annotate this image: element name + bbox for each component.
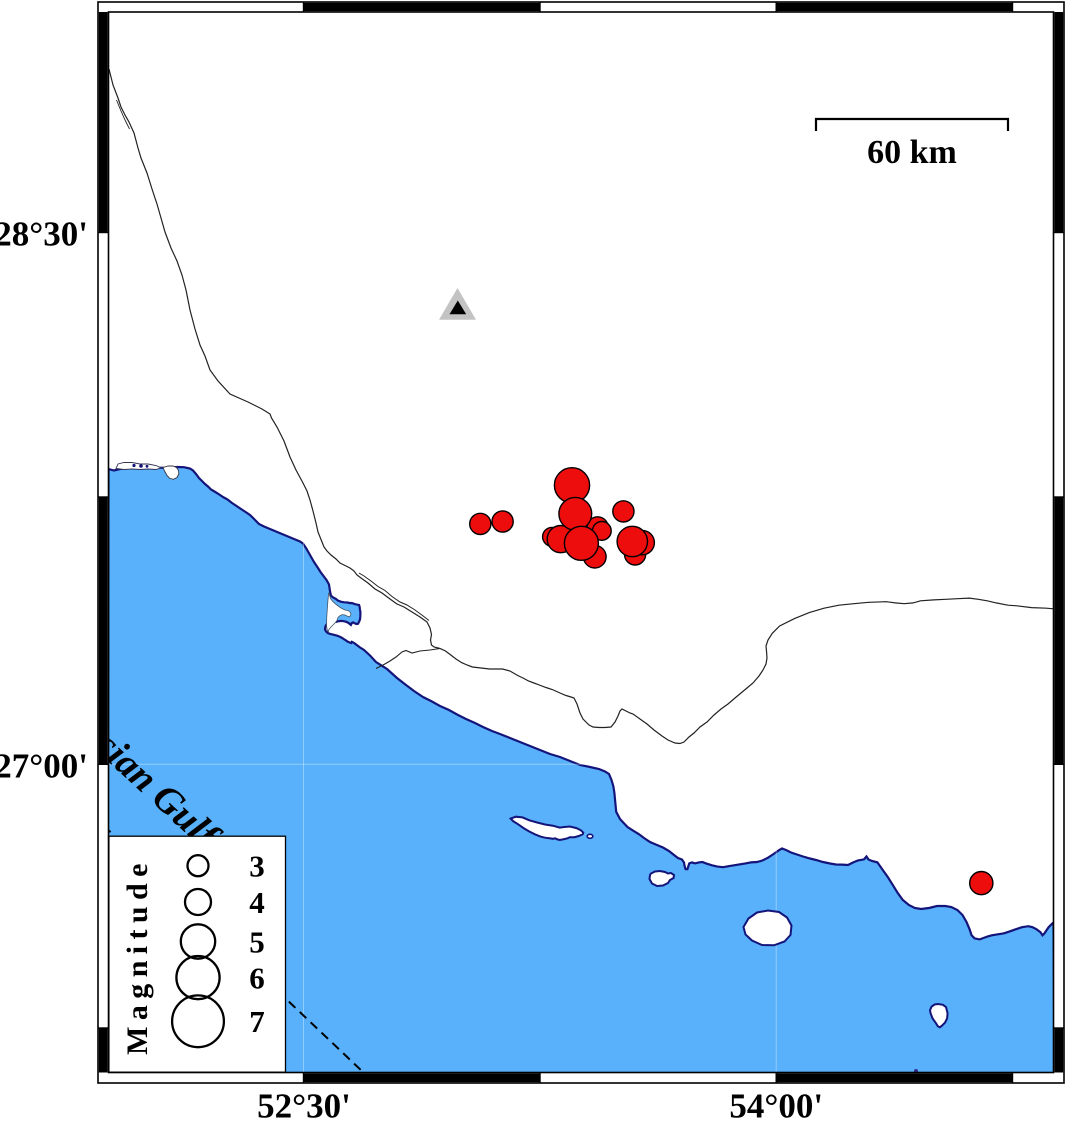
svg-text:28°30': 28°30' [0, 215, 88, 254]
svg-text:5: 5 [249, 924, 265, 959]
svg-text:4: 4 [249, 885, 265, 920]
svg-text:54°00': 54°00' [729, 1087, 823, 1121]
svg-text:7: 7 [249, 1004, 265, 1039]
svg-text:6: 6 [249, 960, 265, 995]
svg-text:60 km: 60 km [867, 134, 957, 171]
svg-text:3: 3 [249, 849, 265, 884]
svg-text:27°00': 27°00' [0, 746, 88, 785]
svg-text:Magnitude: Magnitude [121, 857, 154, 1055]
svg-text:52°30': 52°30' [257, 1087, 351, 1121]
